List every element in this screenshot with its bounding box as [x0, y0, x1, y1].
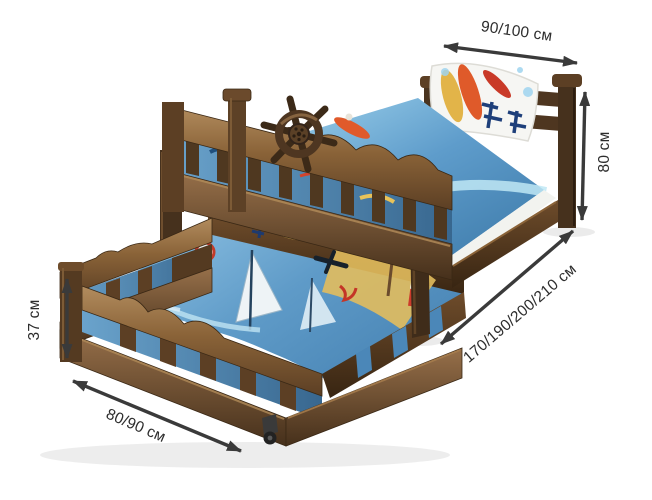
bed-illustration: 90/100 см 80 см 170/190/200/210 см 37 см…: [0, 0, 652, 500]
caster-wheel-icon: [262, 414, 278, 445]
dimension-arrow: [582, 92, 585, 220]
guard-rail-end-post: [162, 102, 184, 212]
dimension-bed-height: 80 см: [582, 92, 613, 220]
product-screenshot: 90/100 см 80 см 170/190/200/210 см 37 см…: [0, 0, 652, 500]
dimension-arrow: [444, 46, 577, 63]
dimension-head-width: 90/100 см: [444, 18, 577, 63]
dimension-label: 80 см: [596, 132, 613, 173]
trundle-corner-post: [58, 262, 84, 362]
dimension-label: 80/90 см: [103, 406, 168, 446]
dimension-label: 90/100 см: [480, 18, 554, 45]
dimension-label: 37 см: [26, 300, 43, 341]
